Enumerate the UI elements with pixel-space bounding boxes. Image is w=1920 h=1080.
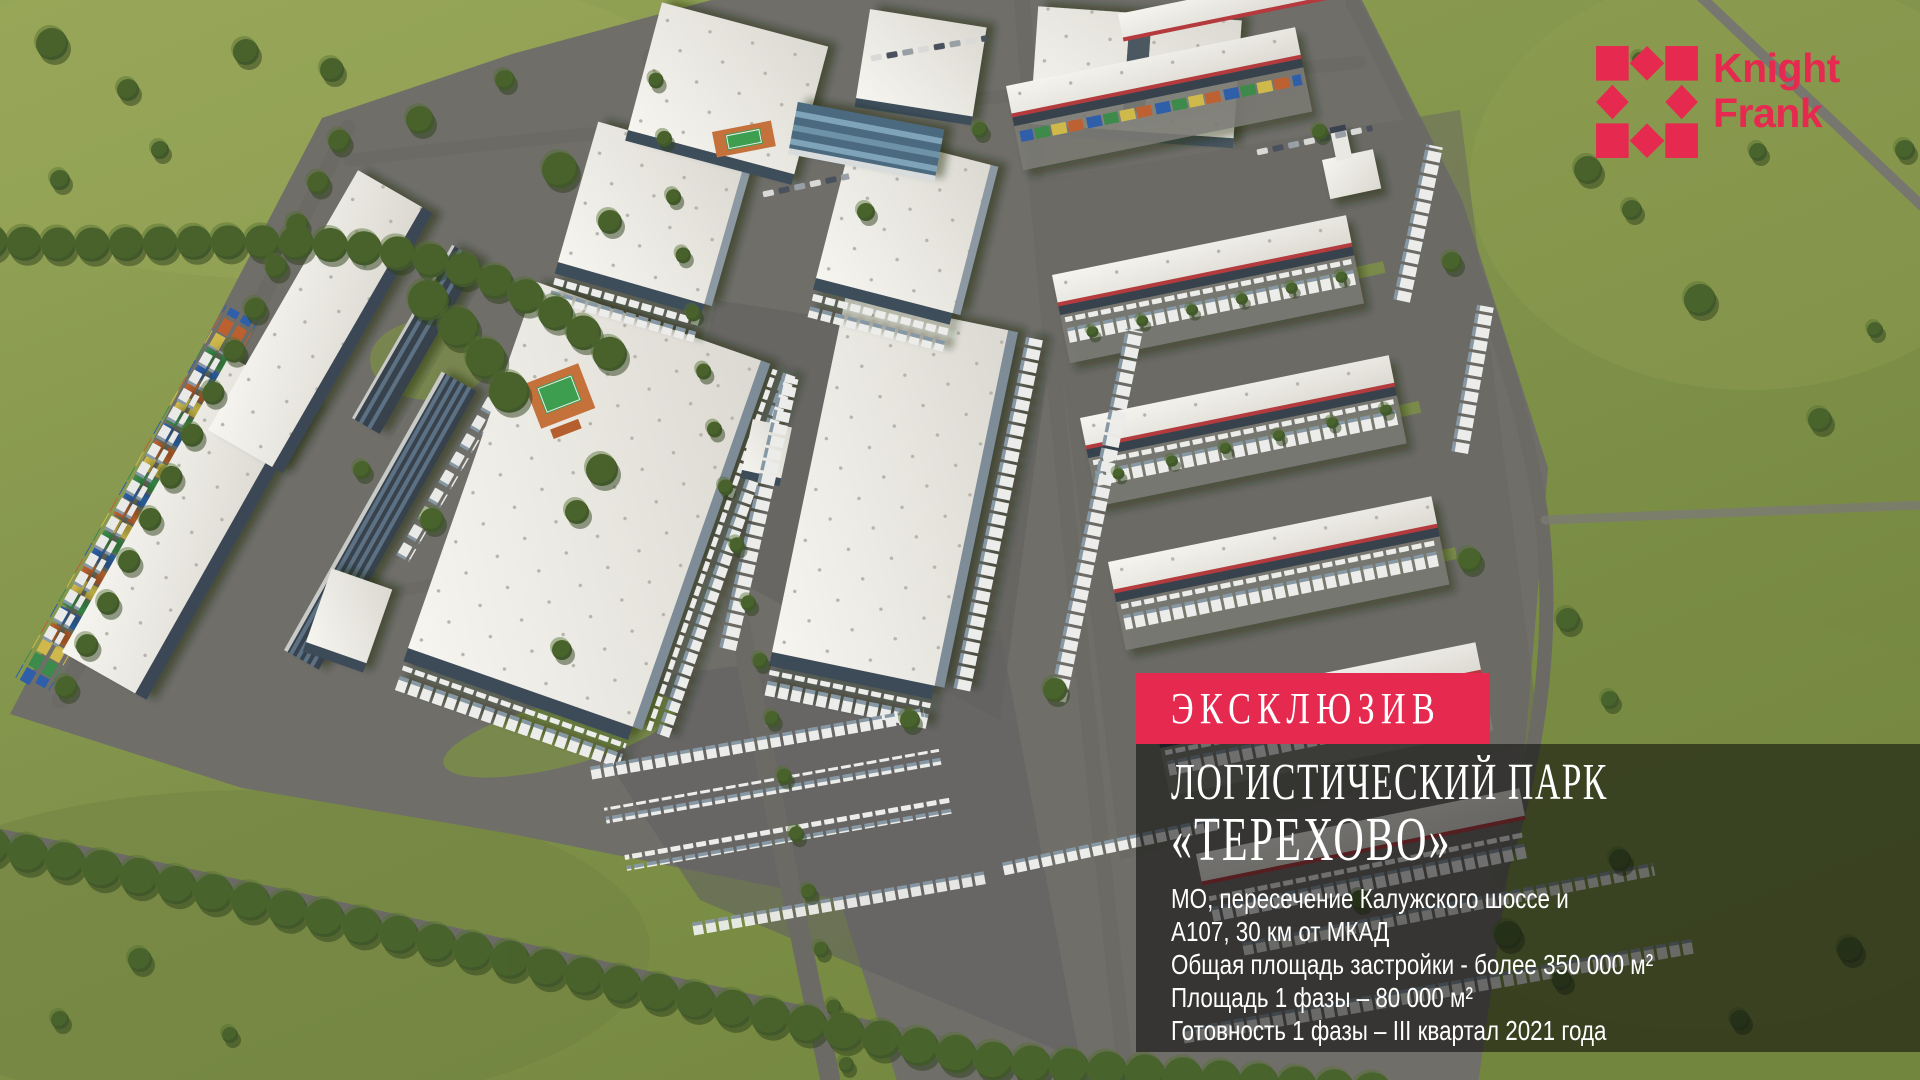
park-details: МО, пересечение Калужского шоссе и А107,… <box>1171 882 1770 1047</box>
slide-root: Knight Frank ЭКСКЛЮЗИВ ЛОГИСТИЧЕСКИЙ ПАР… <box>0 0 1920 1080</box>
park-detail-line: Готовность 1 фазы – III квартал 2021 год… <box>1171 1014 1770 1047</box>
logo-text-knight: Knight <box>1713 46 1840 91</box>
park-detail-line: Площадь 1 фазы – 80 000 м² <box>1171 981 1770 1014</box>
warehouse-building <box>855 9 987 125</box>
info-panel: ЛОГИСТИЧЕСКИЙ ПАРК «ТЕРЕХОВО» МО, пересе… <box>1136 744 1920 1052</box>
park-detail-line: А107, 30 км от МКАД <box>1171 915 1770 948</box>
knight-frank-mark-icon <box>1596 46 1698 158</box>
logo-text-frank: Frank <box>1713 91 1840 136</box>
park-detail-line: Общая площадь застройки - более 350 000 … <box>1171 948 1770 981</box>
exclusive-banner: ЭКСКЛЮЗИВ <box>1136 673 1490 744</box>
park-title-line1: ЛОГИСТИЧЕСКИЙ ПАРК <box>1171 756 1680 810</box>
exclusive-banner-label: ЭКСКЛЮЗИВ <box>1171 683 1441 734</box>
park-title-line2: «ТЕРЕХОВО» <box>1171 810 1680 870</box>
knight-frank-logo: Knight Frank <box>1596 46 1840 158</box>
park-detail-line: МО, пересечение Калужского шоссе и <box>1171 882 1770 915</box>
logo-wordmark: Knight Frank <box>1713 46 1840 136</box>
